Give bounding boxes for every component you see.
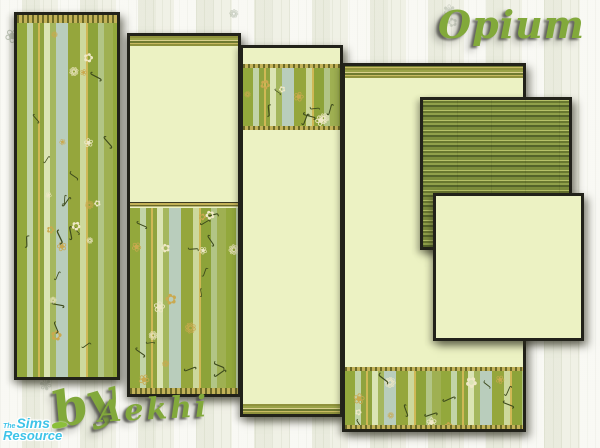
vine-flower-icon: ✿ xyxy=(164,293,180,306)
vine-flower-icon: ∫ xyxy=(182,364,197,375)
swatch-wainscot-wallpaper: ∫✿ʃ❀∫❁∫✿ʃ❀∫❁∫✿ʃ❀∫❁∫✿ʃ❀∫❁ xyxy=(127,33,241,397)
vine-flower-icon: ✿ xyxy=(354,407,364,417)
vine-flower-icon: ✿ xyxy=(48,326,66,344)
vine-flower-icon: ❁ xyxy=(243,89,252,99)
vine-flower-icon: ✿ xyxy=(160,242,173,256)
vine-flower-icon: ʃ xyxy=(310,106,321,111)
vine-flower-icon: ∫ xyxy=(325,102,334,116)
vine-flower-icon: ❁ xyxy=(317,112,333,126)
vine-flower-icon: ∫ xyxy=(213,365,228,379)
vine-flower-icon: ∫ xyxy=(133,346,148,359)
vine-flower-icon: ʃ xyxy=(483,381,493,390)
vine-flower-icon: ✿ xyxy=(443,419,455,425)
set-title: Opium xyxy=(438,2,585,47)
gold-trim-band xyxy=(345,425,523,429)
vine-flower-icon: ❀ xyxy=(493,374,505,385)
vine-flower-icon: ❁ xyxy=(82,199,97,214)
vine-flower-icon: ∫ xyxy=(301,111,316,121)
vine-flower-icon: ∫ xyxy=(501,399,515,409)
vine-flower-icon: ∫ xyxy=(71,226,81,235)
vine-flower-icon: ʃ xyxy=(201,268,207,279)
logo-resource-label: Resource xyxy=(3,429,67,442)
vine-flower-icon: ❀ xyxy=(79,66,91,77)
wallpaper-preview-image: ❀✿❁✾❀✿❁✾❀✿❁✾❀✿❁✾❀✿❁✾❀✿ ∫✿ʃ❀∫❁∫✿ʃ❀∫❁∫✿ʃ❀∫… xyxy=(0,0,600,448)
vine-flower-icon: ʃ xyxy=(188,247,199,251)
vine-flower-icon: ❀ xyxy=(137,370,151,386)
vine-flower-icon: ❀ xyxy=(43,189,53,200)
swatch-full-floral-wallpaper: ∫✿ʃ❀∫❁∫✿ʃ❀∫❁∫✿ʃ❀∫❁∫✿ʃ❀∫❁∫✿ʃ❀∫❁ xyxy=(14,12,120,380)
vine-flower-icon: ∫ xyxy=(30,112,42,124)
vine-flower-icon: ❀ xyxy=(311,111,329,126)
vine-flower-icon: ʃ xyxy=(52,322,60,335)
vine-flower-icon: ❁ xyxy=(46,296,58,308)
vine-flower-icon: ∫ xyxy=(401,405,412,420)
vine-flower-icon: ❀ xyxy=(351,390,370,408)
gold-trim-band xyxy=(17,15,117,23)
vine-flower-icon: ❀ xyxy=(130,240,144,256)
vine-flower-icon: ʃ xyxy=(377,373,391,385)
vine-flower-icon: ∫ xyxy=(503,384,513,397)
vine-flower-icon: ʃ xyxy=(80,342,90,351)
vine-flower-icon: ʃ xyxy=(355,419,364,425)
vine-flower-icon: ∫ xyxy=(60,195,72,209)
vine-flower-icon: ∫ xyxy=(274,88,284,96)
vine-flower-icon: ∫ xyxy=(51,300,65,309)
vine-flower-icon: ∫ xyxy=(66,225,77,241)
cream-lower-area xyxy=(243,130,340,404)
artist-signature: Aekhi xyxy=(97,389,210,430)
striped-floral-pattern: ∫✿ʃ❀∫❁∫✿ʃ❀∫❁∫✿ʃ❀∫❁∫✿ʃ❀∫❁ xyxy=(130,208,238,388)
vine-flower-icon: ∫ xyxy=(423,409,438,420)
vine-flower-icon: ✿ xyxy=(278,85,288,96)
striped-floral-border: ∫✿ʃ❀∫❁∫✿ʃ❀∫❁ xyxy=(243,68,340,126)
gold-stripe-band xyxy=(130,36,238,46)
vine-flower-icon: ❀ xyxy=(198,244,208,255)
vine-flower-icon: ∫ xyxy=(101,134,117,150)
swatch-top-border-wallpaper: ∫✿ʃ❀∫❁∫✿ʃ❀∫❁ xyxy=(240,45,343,417)
vine-flower-icon: ʃ xyxy=(25,235,30,248)
cream-strip xyxy=(243,48,340,64)
gold-stripe-band xyxy=(345,66,523,78)
vine-flower-icon: ∫ xyxy=(198,289,204,299)
striped-floral-border: ∫✿ʃ❀∫❁∫✿ʃ❀∫❁∫✿ʃ❀ xyxy=(345,371,523,425)
vine-flower-icon: ∫ xyxy=(199,217,212,228)
vine-flower-icon: ✿ xyxy=(82,51,96,66)
sims-resource-logo: The Sims Resource xyxy=(3,416,67,442)
vine-flower-icon: ❁ xyxy=(224,244,238,257)
vine-flower-icon: ✿ xyxy=(204,208,216,222)
striped-floral-pattern: ∫✿ʃ❀∫❁∫✿ʃ❀∫❁∫✿ʃ❀∫❁∫✿ʃ❀∫❁∫✿ʃ❀∫❁ xyxy=(17,23,117,377)
vine-flower-icon: ❀ xyxy=(58,138,67,146)
vine-flower-icon: ✿ xyxy=(256,78,271,91)
vine-flower-icon: ❁ xyxy=(380,372,399,391)
vine-flower-icon: ❁ xyxy=(184,320,202,336)
vine-flower-icon: ʃ xyxy=(206,212,220,220)
sketch-flower-icon: ❁ xyxy=(228,9,241,20)
vine-flower-icon: ✿ xyxy=(93,198,102,208)
vine-flower-icon: ❁ xyxy=(144,328,159,342)
vine-flower-icon: ∫ xyxy=(53,270,61,281)
vine-flower-icon: ❀ xyxy=(425,416,441,425)
vine-flower-icon: ❁ xyxy=(67,63,82,79)
vine-flower-icon: ❁ xyxy=(159,357,171,369)
vine-flower-icon: ∫ xyxy=(205,234,218,248)
gator-icon xyxy=(52,421,68,429)
vine-flower-icon: ❀ xyxy=(152,299,167,316)
vine-flower-icon: ❀ xyxy=(52,240,69,256)
vine-flower-icon: ∫ xyxy=(89,70,105,82)
vine-flower-icon: ∫ xyxy=(42,155,50,165)
vine-flower-icon: ❀ xyxy=(82,134,96,149)
gold-stripe-band xyxy=(243,404,340,414)
vine-flower-icon: ❁ xyxy=(50,30,61,41)
vine-flower-icon: ∫ xyxy=(442,393,457,406)
cream-upper-area xyxy=(130,46,238,202)
vine-flower-icon: ∫ xyxy=(135,220,149,230)
vine-flower-icon: ∫ xyxy=(300,112,311,126)
vine-flower-icon: ʃ xyxy=(68,171,80,181)
swatch-plain-cream xyxy=(433,193,584,341)
vine-flower-icon: ∫ xyxy=(62,194,67,204)
vine-flower-icon: ʃ xyxy=(267,104,272,117)
vine-flower-icon: ʃ xyxy=(54,229,65,245)
vine-flower-icon: ✿ xyxy=(463,374,482,393)
plain-cream-surface xyxy=(436,196,581,338)
vine-flower-icon: ❁ xyxy=(84,236,94,245)
vine-flower-icon: ʃ xyxy=(212,361,225,370)
vine-flower-icon: ❁ xyxy=(385,410,396,420)
vine-flower-icon: ∫ xyxy=(146,339,156,346)
vine-flower-icon: ✿ xyxy=(44,225,55,237)
vine-flower-icon: ❀ xyxy=(291,89,305,105)
vine-flower-icon: ✿ xyxy=(70,219,81,232)
vine-flower-icon: ✿ xyxy=(197,211,209,222)
